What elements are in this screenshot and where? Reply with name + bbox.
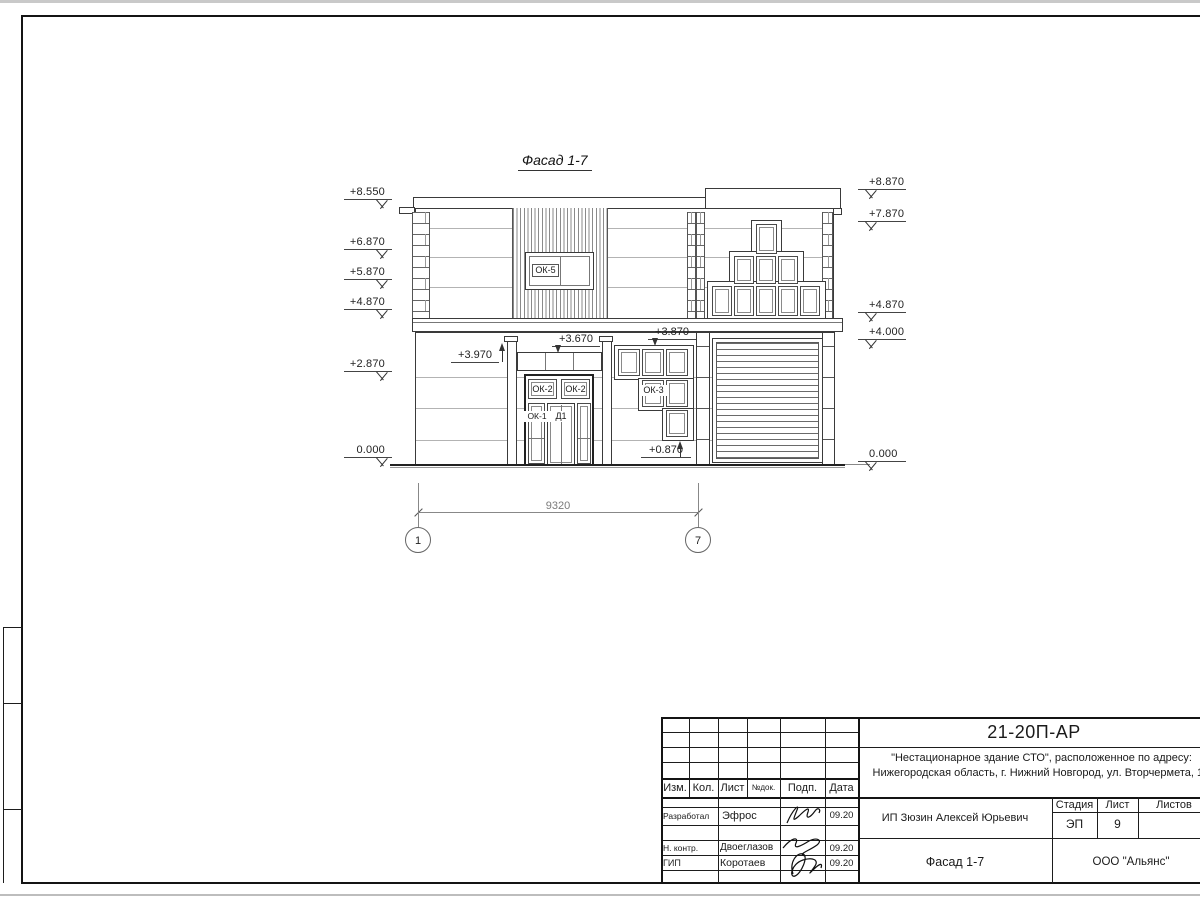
window-label-ok3: ОК-3	[640, 385, 667, 396]
row-name: Эфрос	[722, 809, 778, 822]
project-address-line2: Нижегородская область, г. Нижний Новгоро…	[858, 766, 1200, 779]
project-address-line1: "Нестационарное здание СТО", расположенн…	[858, 751, 1200, 764]
col-header-podp: Подп.	[780, 780, 825, 795]
row-role: ГИП	[663, 857, 717, 869]
floor-band-line	[413, 322, 842, 323]
pyramid-window	[712, 286, 732, 316]
signature	[784, 801, 824, 829]
pyramid-window	[756, 256, 776, 284]
level-value: +4.870	[869, 299, 904, 311]
col-header-ndok: №док.	[747, 780, 780, 795]
col-header-izm: Изм.	[661, 780, 689, 795]
door-sidelight	[577, 403, 591, 464]
level-flag-icon	[375, 310, 388, 319]
garage-roller-door	[716, 342, 819, 459]
door-sidelight-mullion	[578, 438, 590, 439]
axis-bubble-7: 7	[685, 527, 711, 553]
level-value: 0.000	[356, 444, 385, 456]
level-mark: +4.000	[858, 325, 906, 339]
titleblock-line	[661, 762, 858, 763]
ok3-window	[666, 410, 688, 437]
window-label-ok1: ОК-1	[523, 411, 551, 422]
ok3-window	[666, 380, 688, 407]
quoin-column	[696, 212, 705, 318]
entrance-pilaster-right	[602, 341, 612, 466]
axis-drop-line	[418, 512, 419, 527]
callout-ok3-bottom: +0.870	[641, 444, 691, 458]
pyramid-window	[756, 286, 776, 316]
level-value: +8.870	[869, 176, 904, 188]
margin-cell-line	[3, 703, 22, 704]
level-mark: +6.870	[344, 235, 392, 249]
window-ok2-right: ОК-2	[561, 379, 590, 399]
axis-bubble-1: 1	[405, 527, 431, 553]
transom-mullion	[573, 353, 574, 370]
sheets-total-label: Листов	[1138, 798, 1200, 811]
stage-label: Стадия	[1052, 798, 1097, 811]
level-value: +2.870	[350, 358, 385, 370]
door-label-d1: Д1	[552, 411, 570, 422]
pyramid-window	[778, 286, 798, 316]
level-value: +7.870	[869, 208, 904, 220]
row-name: Двоеглазов	[720, 841, 778, 854]
pyramid-window	[778, 256, 798, 284]
titleblock-line	[718, 717, 719, 883]
axis-drop-line	[698, 512, 699, 527]
ground-line	[390, 464, 845, 466]
callout-arrow-icon	[680, 446, 681, 457]
callout-arrow-icon	[655, 339, 656, 341]
level-mark: +8.870	[858, 175, 906, 189]
col-header-kol: Кол.	[689, 780, 718, 795]
frame-bottom	[21, 882, 1200, 884]
row-date: 09.20	[826, 809, 857, 822]
level-flag-icon	[864, 340, 877, 349]
pyramid-window	[800, 286, 820, 316]
titleblock-line	[858, 838, 1200, 839]
level-mark: 0.000	[344, 443, 392, 457]
signature	[779, 834, 835, 880]
ok3-window	[642, 349, 664, 376]
level-flag-icon	[375, 372, 388, 381]
transom-mullion	[545, 353, 546, 370]
company-name: ООО "Альянс"	[1052, 850, 1200, 874]
row-role: Н. контр.	[663, 842, 717, 854]
stage-value: ЭП	[1052, 814, 1097, 834]
level-mark: +4.870	[344, 295, 392, 309]
level-flag-icon	[375, 280, 388, 289]
view-title-cell: Фасад 1-7	[858, 850, 1052, 874]
level-mark: 0.000	[858, 447, 906, 461]
level-flag-icon	[375, 200, 388, 209]
margin-cell-line	[3, 809, 22, 810]
quoin-column	[412, 212, 430, 318]
window-label-ok5: ОК-5	[532, 264, 559, 277]
pyramid-window	[734, 286, 754, 316]
level-flag-icon	[864, 222, 877, 231]
row-role: Разработал	[663, 809, 717, 822]
pyramid-window	[756, 224, 777, 254]
entrance-pilaster-left	[507, 341, 517, 466]
parapet-band-right	[705, 188, 841, 209]
pilaster-middle	[696, 333, 710, 465]
level-mark: +4.870	[858, 298, 906, 312]
level-flag-icon	[864, 313, 877, 322]
level-flag-icon	[864, 190, 877, 199]
callout-arrow-icon	[502, 348, 503, 362]
ok3-window	[666, 349, 688, 376]
view-title: Фасад 1-7	[518, 152, 592, 171]
pyramid-window	[734, 256, 754, 284]
titleblock-line	[1052, 812, 1200, 813]
titleblock-line	[661, 807, 858, 808]
callout-arrow-icon	[558, 346, 559, 348]
col-header-data: Дата	[825, 780, 858, 795]
frame-top	[21, 15, 1200, 17]
level-value: 0.000	[869, 448, 898, 460]
floor-band	[412, 318, 843, 332]
ok3-window	[618, 349, 640, 376]
window-ok5-mullion	[560, 257, 561, 285]
level-value: +8.550	[350, 186, 385, 198]
titleblock-line	[661, 732, 858, 733]
level-mark: +2.870	[344, 357, 392, 371]
pilaster-right	[822, 333, 835, 465]
level-mark: +5.870	[344, 265, 392, 279]
level-value: +4.870	[350, 296, 385, 308]
titleblock-line	[661, 747, 1200, 748]
level-flag-icon	[864, 462, 877, 471]
dimension-value: 9320	[530, 500, 586, 512]
window-ok2-left: ОК-2	[528, 379, 557, 399]
level-value: +6.870	[350, 236, 385, 248]
ground-line-secondary	[390, 467, 845, 468]
drawing-sheet: Фасад 1-7 ОК-5 ОК-2 ОК-2	[0, 0, 1200, 900]
paper-edge-top	[0, 0, 1200, 3]
frame-left	[21, 15, 23, 884]
row-name: Коротаев	[720, 856, 778, 869]
titleblock-line	[661, 825, 858, 826]
dimension-line	[418, 512, 698, 513]
client-name: ИП Зюзин Алексей Юрьевич	[858, 800, 1052, 836]
sheet-label: Лист	[1097, 798, 1138, 811]
callout-pilaster-top: +3.970	[451, 349, 499, 363]
margin-cells-edge	[3, 627, 4, 883]
paper-edge-bottom	[0, 894, 1200, 896]
col-header-list: Лист	[718, 780, 747, 795]
window-ok1-mullion	[529, 438, 544, 439]
quoin-column	[687, 212, 696, 318]
level-value: +4.000	[869, 326, 904, 338]
level-mark: +7.870	[858, 207, 906, 221]
level-flag-icon	[375, 458, 388, 467]
level-value: +5.870	[350, 266, 385, 278]
margin-cell-line	[3, 627, 22, 628]
doc-number: 21-20П-АР	[858, 719, 1200, 745]
level-mark: +8.550	[344, 185, 392, 199]
sheet-value: 9	[1097, 814, 1138, 834]
level-flag-icon	[375, 250, 388, 259]
